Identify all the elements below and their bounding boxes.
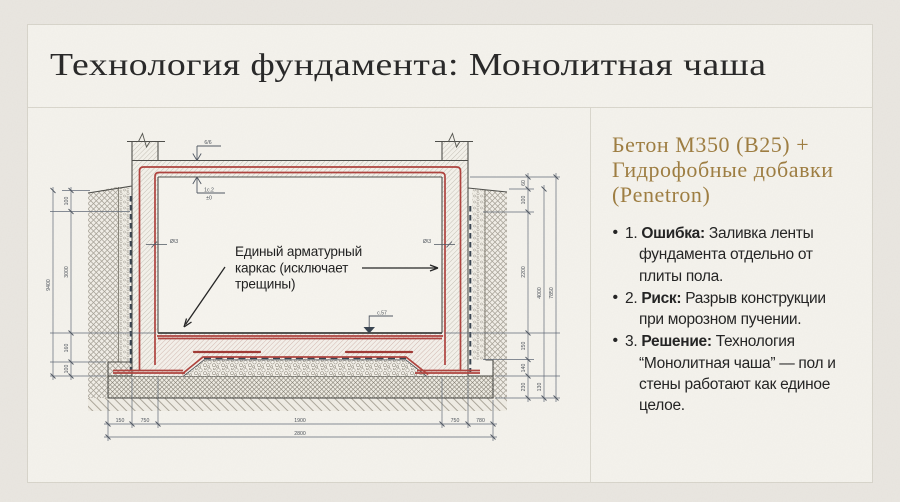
svg-text:780: 780 xyxy=(476,418,485,424)
svg-text:750: 750 xyxy=(141,418,150,424)
svg-text:9400: 9400 xyxy=(46,279,52,291)
svg-text:1900: 1900 xyxy=(294,418,306,424)
svg-text:3000: 3000 xyxy=(64,266,70,278)
svg-text:Единый арматурный: Единый арматурный xyxy=(235,244,362,259)
svg-text:с.57: с.57 xyxy=(377,311,387,317)
svg-text:1с.2: 1с.2 xyxy=(204,188,214,194)
svg-text:Ø\3: Ø\3 xyxy=(170,239,178,245)
svg-text:100: 100 xyxy=(64,365,70,374)
svg-text:каркас (исключает: каркас (исключает xyxy=(235,260,348,275)
svg-text:100: 100 xyxy=(64,197,70,206)
svg-text:2200: 2200 xyxy=(521,266,527,278)
svg-text:±0: ±0 xyxy=(206,196,212,202)
svg-text:150: 150 xyxy=(521,342,527,351)
svg-text:60: 60 xyxy=(521,180,527,186)
svg-text:6/6: 6/6 xyxy=(204,140,211,146)
svg-text:Ø\3: Ø\3 xyxy=(423,239,431,245)
svg-text:150: 150 xyxy=(116,418,125,424)
svg-text:160: 160 xyxy=(64,344,70,353)
svg-text:230: 230 xyxy=(521,383,527,392)
svg-text:750: 750 xyxy=(451,418,460,424)
svg-text:130: 130 xyxy=(537,383,543,392)
svg-text:140: 140 xyxy=(521,364,527,373)
svg-text:7850: 7850 xyxy=(549,287,555,299)
svg-text:4000: 4000 xyxy=(537,287,543,299)
svg-text:2800: 2800 xyxy=(294,431,306,437)
svg-text:100: 100 xyxy=(521,196,527,205)
svg-text:трещины): трещины) xyxy=(235,277,295,292)
